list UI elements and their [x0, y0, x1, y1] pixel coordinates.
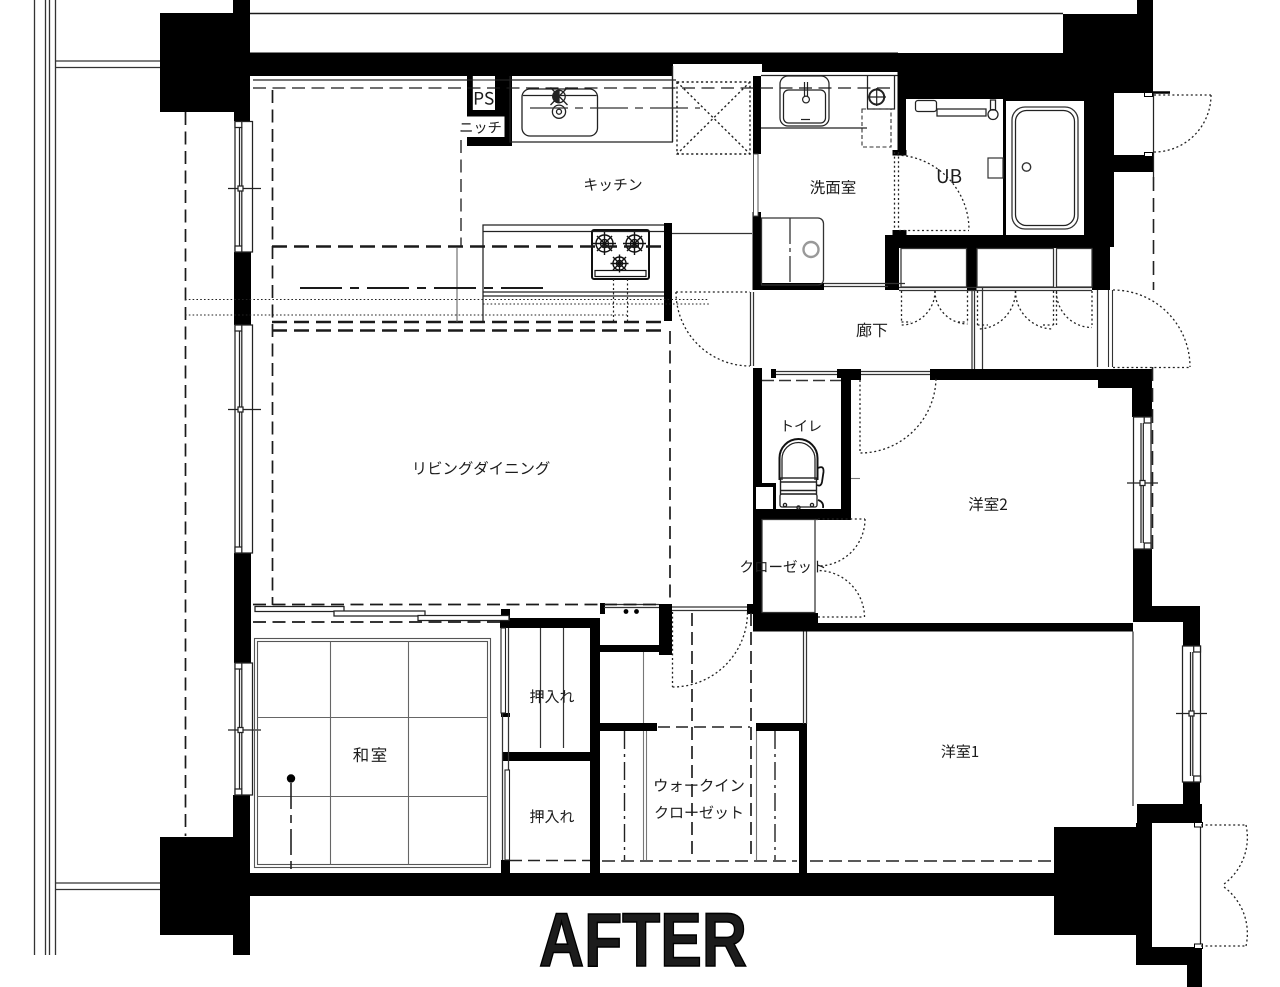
svg-text:AFTER: AFTER [539, 898, 747, 983]
